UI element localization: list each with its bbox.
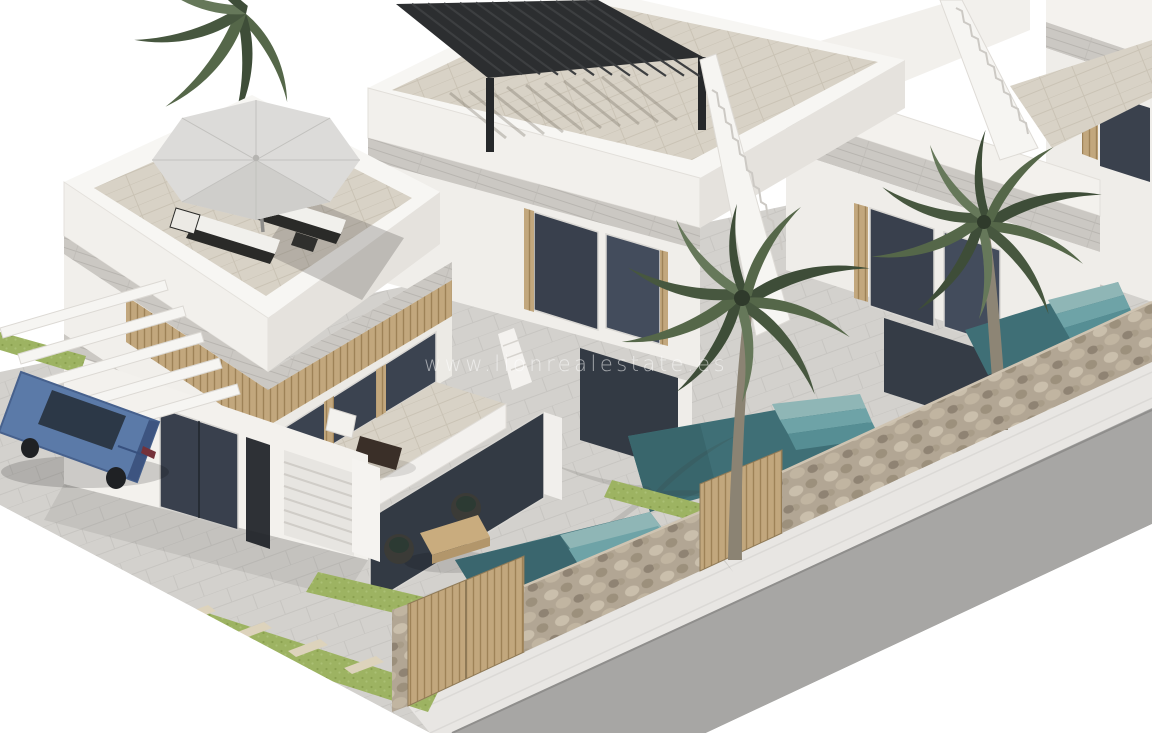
villa3-wood-post bbox=[854, 203, 868, 302]
villa2-wood-post bbox=[524, 208, 534, 312]
wall-pillar bbox=[392, 604, 408, 712]
villa2-glass-door bbox=[606, 234, 660, 344]
watermark-text: www.lionrealestate.es bbox=[424, 352, 728, 376]
villa2-glass-door bbox=[534, 212, 598, 330]
car-wheel bbox=[21, 438, 39, 458]
villa3-glass-door bbox=[870, 208, 934, 327]
car-wheel bbox=[106, 467, 126, 489]
render-canvas: 3D render of modern villas bbox=[0, 0, 1152, 733]
pergola-leg bbox=[486, 78, 494, 152]
